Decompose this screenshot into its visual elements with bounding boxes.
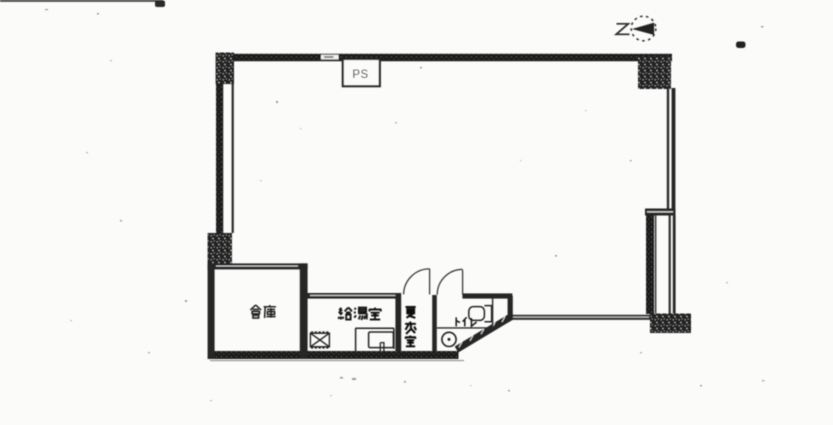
- svg-text:PS: PS: [352, 69, 368, 81]
